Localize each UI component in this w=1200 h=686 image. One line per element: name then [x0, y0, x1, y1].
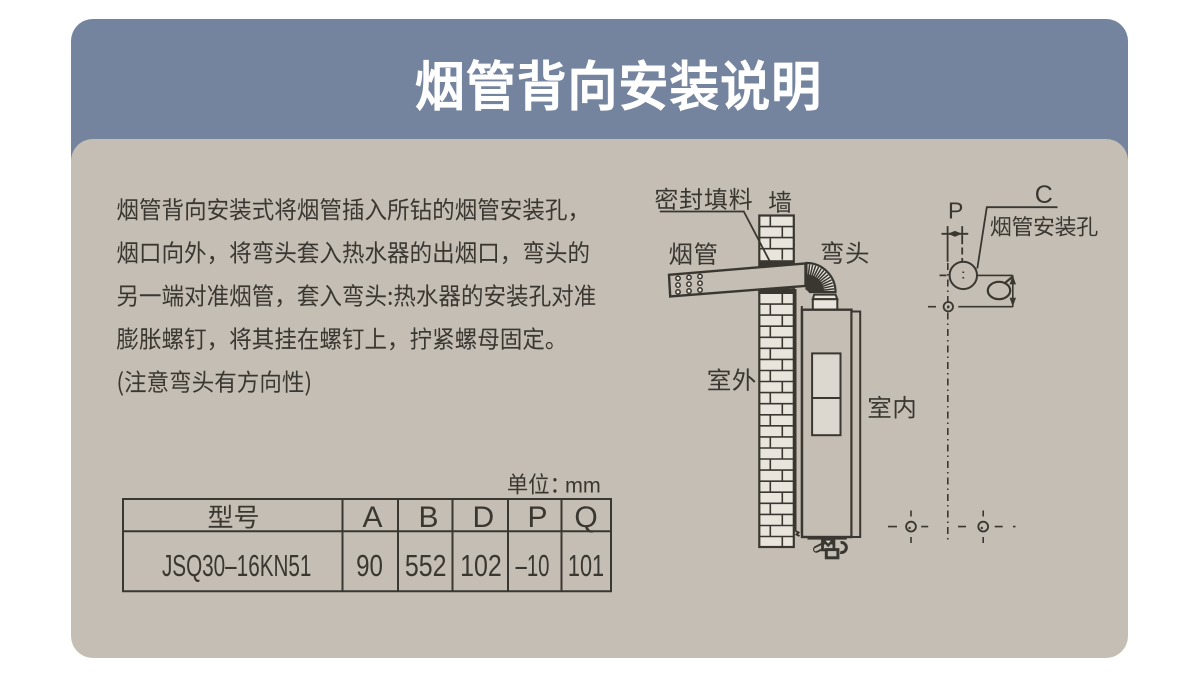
- svg-text:–10: –10: [516, 548, 550, 583]
- svg-text:A: A: [362, 501, 382, 534]
- svg-text:JSQ30–16KN51: JSQ30–16KN51: [162, 548, 312, 583]
- svg-text:D: D: [472, 501, 494, 534]
- svg-text:90: 90: [356, 548, 383, 583]
- svg-text:101: 101: [568, 548, 604, 583]
- svg-text:mm: mm: [565, 474, 601, 498]
- svg-text:Q: Q: [574, 501, 597, 534]
- svg-text:P: P: [948, 198, 963, 224]
- svg-text:C: C: [1035, 181, 1053, 209]
- svg-text:102: 102: [460, 548, 502, 583]
- svg-text:P: P: [527, 501, 547, 534]
- svg-text:B: B: [418, 501, 438, 534]
- svg-text:552: 552: [405, 548, 447, 583]
